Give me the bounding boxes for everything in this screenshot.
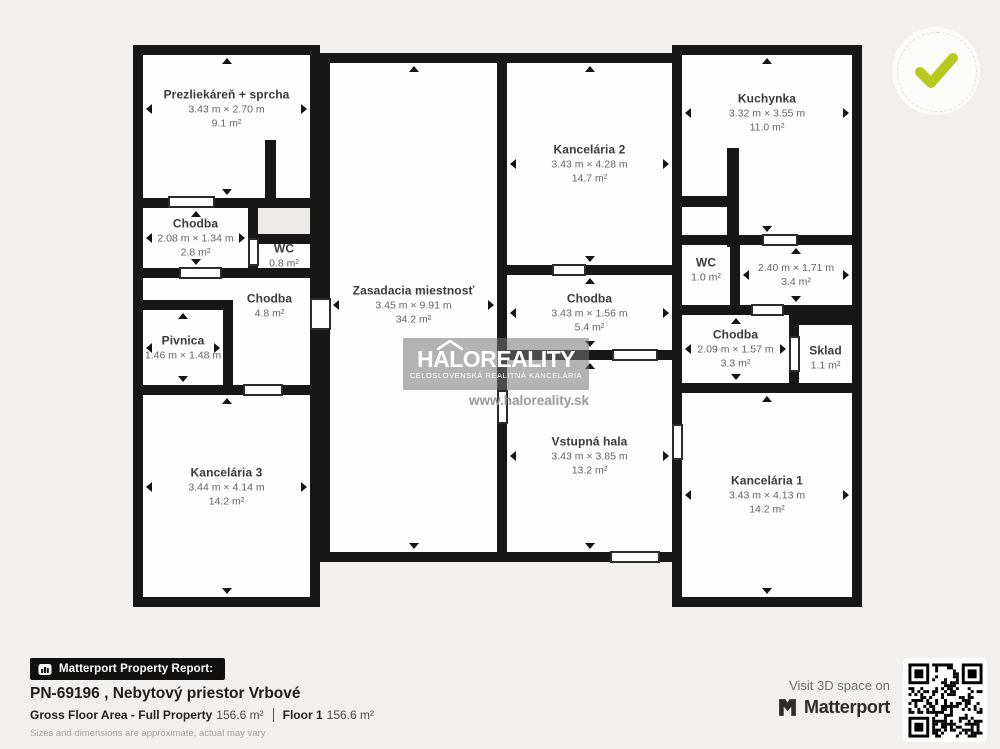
dimension-arrow-miestnost-240 — [791, 296, 801, 302]
room-area-chodba-horna: 2.8 m² — [157, 246, 233, 260]
room-dims-chodba-dolna: 2.09 m × 1.57 m — [697, 343, 773, 357]
dimension-arrow-chodba-dolna — [731, 318, 741, 324]
dimension-arrow-prezliekaren — [146, 104, 152, 114]
room-label-chodba-dolna: Chodba2.09 m × 1.57 m3.3 m² — [697, 328, 773, 371]
dimension-arrow-kancelaria-3 — [146, 482, 152, 492]
matterport-brand-label: Matterport — [804, 697, 890, 718]
room-area-sklad: 1.1 m² — [809, 358, 842, 372]
dimension-arrow-prezliekaren — [301, 104, 307, 114]
door-opening-2 — [243, 384, 283, 396]
room-name-prezliekaren: Prezliekáreň + sprcha — [164, 87, 290, 102]
room-area-chodba-prava: 5.4 m² — [551, 320, 627, 334]
dimension-arrow-kancelaria-3 — [301, 482, 307, 492]
room-label-kancelaria-3: Kancelária 33.44 m × 4.14 m14.2 m² — [188, 466, 264, 509]
dimension-arrow-chodba-dolna — [731, 374, 741, 380]
room-dims-vstupna-hala: 3.43 m × 3.85 m — [551, 450, 627, 464]
room-label-prezliekaren: Prezliekáreň + sprcha3.43 m × 2.70 m9.1 … — [164, 87, 290, 130]
property-title: PN-69196 , Nebytový priestor Vrbové — [30, 685, 301, 703]
dimension-arrow-pivnica — [146, 343, 152, 353]
dimension-arrow-kuchynka — [843, 108, 849, 118]
room-name-vstupna-hala: Vstupná hala — [551, 435, 627, 450]
room-label-wc-lavy: WC0.8 m² — [269, 242, 299, 271]
gross-area-label: Gross Floor Area - Full Property — [30, 708, 212, 722]
room-area-kancelaria-3: 14.2 m² — [188, 495, 264, 509]
dimension-arrow-miestnost-240 — [843, 270, 849, 280]
verified-badge — [892, 27, 980, 115]
room-name-wc-lavy: WC — [269, 242, 299, 257]
dimension-arrow-pivnica — [178, 313, 188, 319]
dimension-arrow-chodba-prava — [510, 308, 516, 318]
room-dims-miestnost-240: 2.40 m × 1.71 m — [758, 261, 834, 275]
room-name-kancelaria-1: Kancelária 1 — [729, 474, 805, 489]
visit-label: Visit 3D space on — [700, 678, 890, 694]
matterport-brand: Matterport — [700, 697, 890, 718]
dimension-arrow-zasadacia-miestnost — [409, 66, 419, 72]
room-area-vstupna-hala: 13.2 m² — [551, 464, 627, 478]
roof-icon — [437, 340, 463, 350]
room-area-wc-lavy: 0.8 m² — [269, 257, 299, 271]
room-area-prezliekaren: 9.1 m² — [164, 116, 290, 130]
wall-stub-2 — [682, 196, 728, 207]
report-pill: Matterport Property Report: — [30, 658, 225, 680]
room-name-kuchynka: Kuchynka — [729, 92, 805, 107]
room-name-wc-pravy: WC — [691, 256, 721, 271]
room-dims-kuchynka: 3.32 m × 3.55 m — [729, 107, 805, 121]
dimension-arrow-kancelaria-1 — [762, 588, 772, 594]
dimension-arrow-chodba-horna — [191, 211, 201, 217]
gross-area-value: 156.6 m² — [216, 708, 263, 722]
room-label-chodba-prava: Chodba3.43 m × 1.56 m5.4 m² — [551, 291, 627, 334]
watermark: HALOREALITY CELOSLOVENSKÁ REALITNÁ KANCE… — [403, 338, 589, 390]
room-name-zasadacia-miestnost: Zasadacia miestnosť — [353, 283, 475, 298]
area-summary: Gross Floor Area - Full Property 156.6 m… — [30, 708, 374, 722]
dimension-arrow-pivnica — [178, 376, 188, 382]
dimension-arrow-kancelaria-3 — [222, 398, 232, 404]
report-home-icon — [38, 663, 52, 676]
dimension-arrow-miestnost-240 — [791, 248, 801, 254]
dimension-arrow-chodba-prava — [663, 308, 669, 318]
room-dims-pivnica: 1.46 m × 1.48 m — [145, 348, 221, 362]
room-name-chodba-prava: Chodba — [551, 291, 627, 306]
dimension-arrow-chodba-horna — [191, 259, 201, 265]
dimension-arrow-kancelaria-2 — [585, 256, 595, 262]
door-opening-3 — [610, 551, 660, 563]
door-opening-4 — [762, 234, 798, 246]
dimension-arrow-chodba-prava — [585, 278, 595, 284]
watermark-subtitle: CELOSLOVENSKÁ REALITNÁ KANCELÁRIA — [403, 371, 589, 381]
dimension-arrow-kuchynka — [762, 58, 772, 64]
room-area-zasadacia-miestnost: 34.2 m² — [353, 312, 475, 326]
room-name-sklad: Sklad — [809, 343, 842, 358]
room-name-chodba-stredna: Chodba — [247, 292, 292, 307]
dimension-arrow-kancelaria-2 — [663, 159, 669, 169]
door-opening-8 — [310, 298, 331, 330]
door-opening-5 — [751, 304, 784, 316]
dimension-arrow-vstupna-hala — [510, 451, 516, 461]
room-dims-kancelaria-3: 3.44 m × 4.14 m — [188, 481, 264, 495]
door-opening-6 — [789, 336, 800, 372]
room-label-vstupna-hala: Vstupná hala3.43 m × 3.85 m13.2 m² — [551, 435, 627, 478]
dimension-arrow-kancelaria-2 — [510, 159, 516, 169]
room-dims-kancelaria-2: 3.43 m × 4.28 m — [551, 158, 627, 172]
watermark-url: www.haloreality.sk — [403, 393, 589, 408]
room-label-sklad: Sklad1.1 m² — [809, 343, 842, 372]
dimension-arrow-kuchynka — [762, 226, 772, 232]
room-name-chodba-dolna: Chodba — [697, 328, 773, 343]
wall-stub-1 — [727, 148, 739, 247]
room-label-kancelaria-2: Kancelária 23.43 m × 4.28 m14.7 m² — [551, 143, 627, 186]
dimension-arrow-chodba-dolna — [780, 344, 786, 354]
room-name-kancelaria-2: Kancelária 2 — [551, 143, 627, 158]
room-area-chodba-stredna: 4.8 m² — [247, 307, 292, 321]
floor-value: 156.6 m² — [327, 708, 374, 722]
disclaimer-text: Sizes and dimensions are approximate, ac… — [30, 728, 266, 739]
dimension-arrow-zasadacia-miestnost — [409, 543, 419, 549]
dimension-arrow-kancelaria-1 — [762, 396, 772, 402]
dimension-arrow-kancelaria-1 — [843, 490, 849, 500]
room-area-wc-pravy: 1.0 m² — [691, 271, 721, 285]
room-dims-kancelaria-1: 3.43 m × 4.13 m — [729, 489, 805, 503]
dimension-arrow-kuchynka — [685, 108, 691, 118]
door-opening-11 — [612, 349, 658, 361]
room-name-chodba-horna: Chodba — [157, 217, 233, 232]
wall-stub-0 — [265, 140, 276, 200]
door-opening-7 — [248, 238, 259, 266]
dimension-arrow-chodba-horna — [239, 233, 245, 243]
dimension-arrow-prezliekaren — [222, 189, 232, 195]
dimension-arrow-kancelaria-2 — [585, 66, 595, 72]
dimension-arrow-zasadacia-miestnost — [333, 300, 339, 310]
report-label: Matterport Property Report: — [59, 663, 213, 675]
room-dims-chodba-prava: 3.43 m × 1.56 m — [551, 306, 627, 320]
door-opening-12 — [552, 264, 586, 276]
room-area-chodba-dolna: 3.3 m² — [697, 357, 773, 371]
dimension-arrow-pivnica — [214, 343, 220, 353]
door-opening-0 — [168, 196, 215, 208]
door-opening-1 — [179, 267, 222, 279]
watermark-brand: HALOREALITY — [403, 347, 589, 371]
dimension-arrow-miestnost-240 — [743, 270, 749, 280]
room-label-chodba-horna: Chodba2.08 m × 1.34 m2.8 m² — [157, 217, 233, 260]
dimension-arrow-zasadacia-miestnost — [488, 300, 494, 310]
floor-label: Floor 1 — [283, 708, 323, 722]
qr-code — [903, 658, 987, 742]
room-dims-chodba-horna: 2.08 m × 1.34 m — [157, 232, 233, 246]
door-opening-10 — [672, 424, 683, 460]
room-label-miestnost-240: 2.40 m × 1.71 m3.4 m² — [758, 261, 834, 289]
room-area-kuchynka: 11.0 m² — [729, 121, 805, 135]
dimension-arrow-kancelaria-1 — [685, 490, 691, 500]
room-area-miestnost-240: 3.4 m² — [758, 275, 834, 289]
room-area-kancelaria-1: 14.2 m² — [729, 503, 805, 517]
room-dims-prezliekaren: 3.43 m × 2.70 m — [164, 102, 290, 116]
room-area-kancelaria-2: 14.7 m² — [551, 172, 627, 186]
visit-3d-block: Visit 3D space on Matterport — [700, 678, 890, 718]
dimension-arrow-chodba-dolna — [685, 344, 691, 354]
room-name-kancelaria-3: Kancelária 3 — [188, 466, 264, 481]
matterport-logo-icon — [777, 697, 798, 718]
room-label-pivnica: Pivnica1.46 m × 1.48 m — [145, 333, 221, 362]
dimension-arrow-prezliekaren — [222, 58, 232, 64]
room-name-pivnica: Pivnica — [145, 333, 221, 348]
room-label-chodba-stredna: Chodba4.8 m² — [247, 292, 292, 321]
dimension-arrow-vstupna-hala — [663, 451, 669, 461]
divider — [273, 708, 274, 722]
room-dims-zasadacia-miestnost: 3.45 m × 9.91 m — [353, 298, 475, 312]
room-kuchynka — [672, 45, 862, 245]
dimension-arrow-chodba-horna — [146, 233, 152, 243]
check-icon — [906, 41, 966, 101]
room-label-zasadacia-miestnost: Zasadacia miestnosť3.45 m × 9.91 m34.2 m… — [353, 283, 475, 326]
dimension-arrow-vstupna-hala — [585, 543, 595, 549]
room-label-kancelaria-1: Kancelária 13.43 m × 4.13 m14.2 m² — [729, 474, 805, 517]
property-report-page: Prezliekáreň + sprcha3.43 m × 2.70 m9.1 … — [0, 0, 1000, 749]
room-label-kuchynka: Kuchynka3.32 m × 3.55 m11.0 m² — [729, 92, 805, 135]
room-label-wc-pravy: WC1.0 m² — [691, 256, 721, 285]
dimension-arrow-kancelaria-3 — [222, 588, 232, 594]
